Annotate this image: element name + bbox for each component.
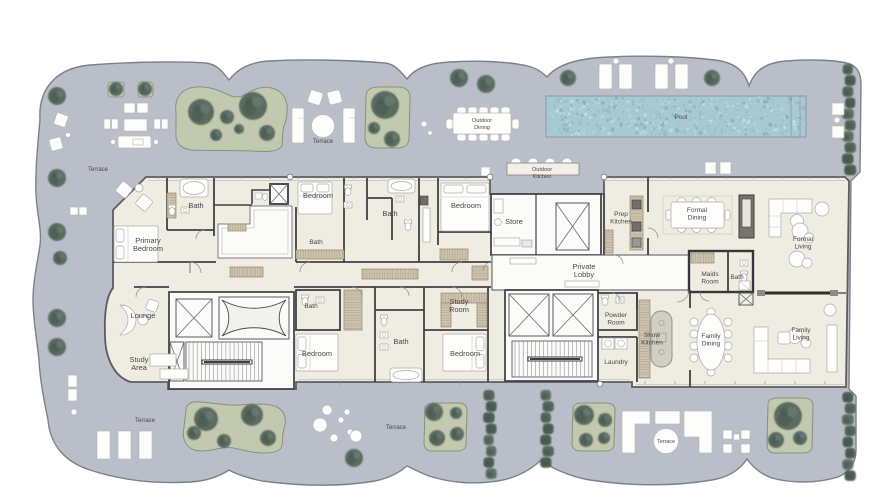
svg-text:Outdoor: Outdoor — [532, 167, 552, 173]
svg-text:Family: Family — [701, 333, 721, 340]
svg-text:Lounge: Lounge — [131, 311, 156, 320]
svg-text:Bath: Bath — [382, 209, 397, 218]
svg-text:Bath: Bath — [730, 274, 744, 281]
svg-text:Terrace: Terrace — [88, 167, 109, 173]
svg-text:Kitchen: Kitchen — [610, 218, 632, 225]
svg-text:Lobby: Lobby — [574, 270, 594, 279]
svg-text:Family: Family — [791, 327, 811, 334]
svg-text:Pool: Pool — [675, 114, 687, 121]
svg-text:Room: Room — [607, 319, 624, 326]
svg-text:Room: Room — [701, 278, 718, 285]
svg-text:Laundry: Laundry — [604, 359, 628, 366]
svg-text:Bedroom: Bedroom — [303, 191, 333, 200]
svg-text:Living: Living — [793, 334, 810, 341]
svg-text:Kitchen: Kitchen — [533, 174, 552, 180]
svg-text:Formal: Formal — [687, 207, 708, 214]
svg-text:Outdoor: Outdoor — [472, 118, 492, 124]
svg-text:Living: Living — [795, 243, 812, 250]
svg-text:Maids: Maids — [701, 271, 719, 278]
svg-text:Bath: Bath — [188, 201, 203, 210]
svg-text:Formal: Formal — [793, 236, 814, 243]
svg-text:Bedroom: Bedroom — [451, 201, 481, 210]
svg-text:Show: Show — [644, 332, 661, 339]
svg-text:Area: Area — [131, 363, 148, 372]
svg-text:Room: Room — [449, 305, 469, 314]
svg-text:Bath: Bath — [309, 239, 323, 246]
svg-text:Prep: Prep — [614, 211, 628, 218]
svg-text:Bath: Bath — [304, 303, 318, 310]
svg-text:Terrace: Terrace — [386, 425, 407, 431]
svg-text:Bedroom: Bedroom — [133, 244, 163, 253]
svg-text:Bedroom: Bedroom — [302, 349, 332, 358]
svg-text:Bath: Bath — [393, 337, 408, 346]
svg-text:Terrace: Terrace — [657, 439, 675, 445]
svg-text:Dining: Dining — [474, 125, 490, 131]
svg-text:Dining: Dining — [688, 214, 707, 221]
svg-text:Terrace: Terrace — [313, 139, 334, 145]
svg-text:Dining: Dining — [702, 340, 721, 347]
svg-text:Kitchen: Kitchen — [641, 339, 663, 346]
svg-text:Terrace: Terrace — [135, 418, 156, 424]
svg-text:Store: Store — [505, 217, 523, 226]
svg-text:Bedroom: Bedroom — [450, 349, 480, 358]
svg-text:Powder: Powder — [605, 312, 628, 319]
